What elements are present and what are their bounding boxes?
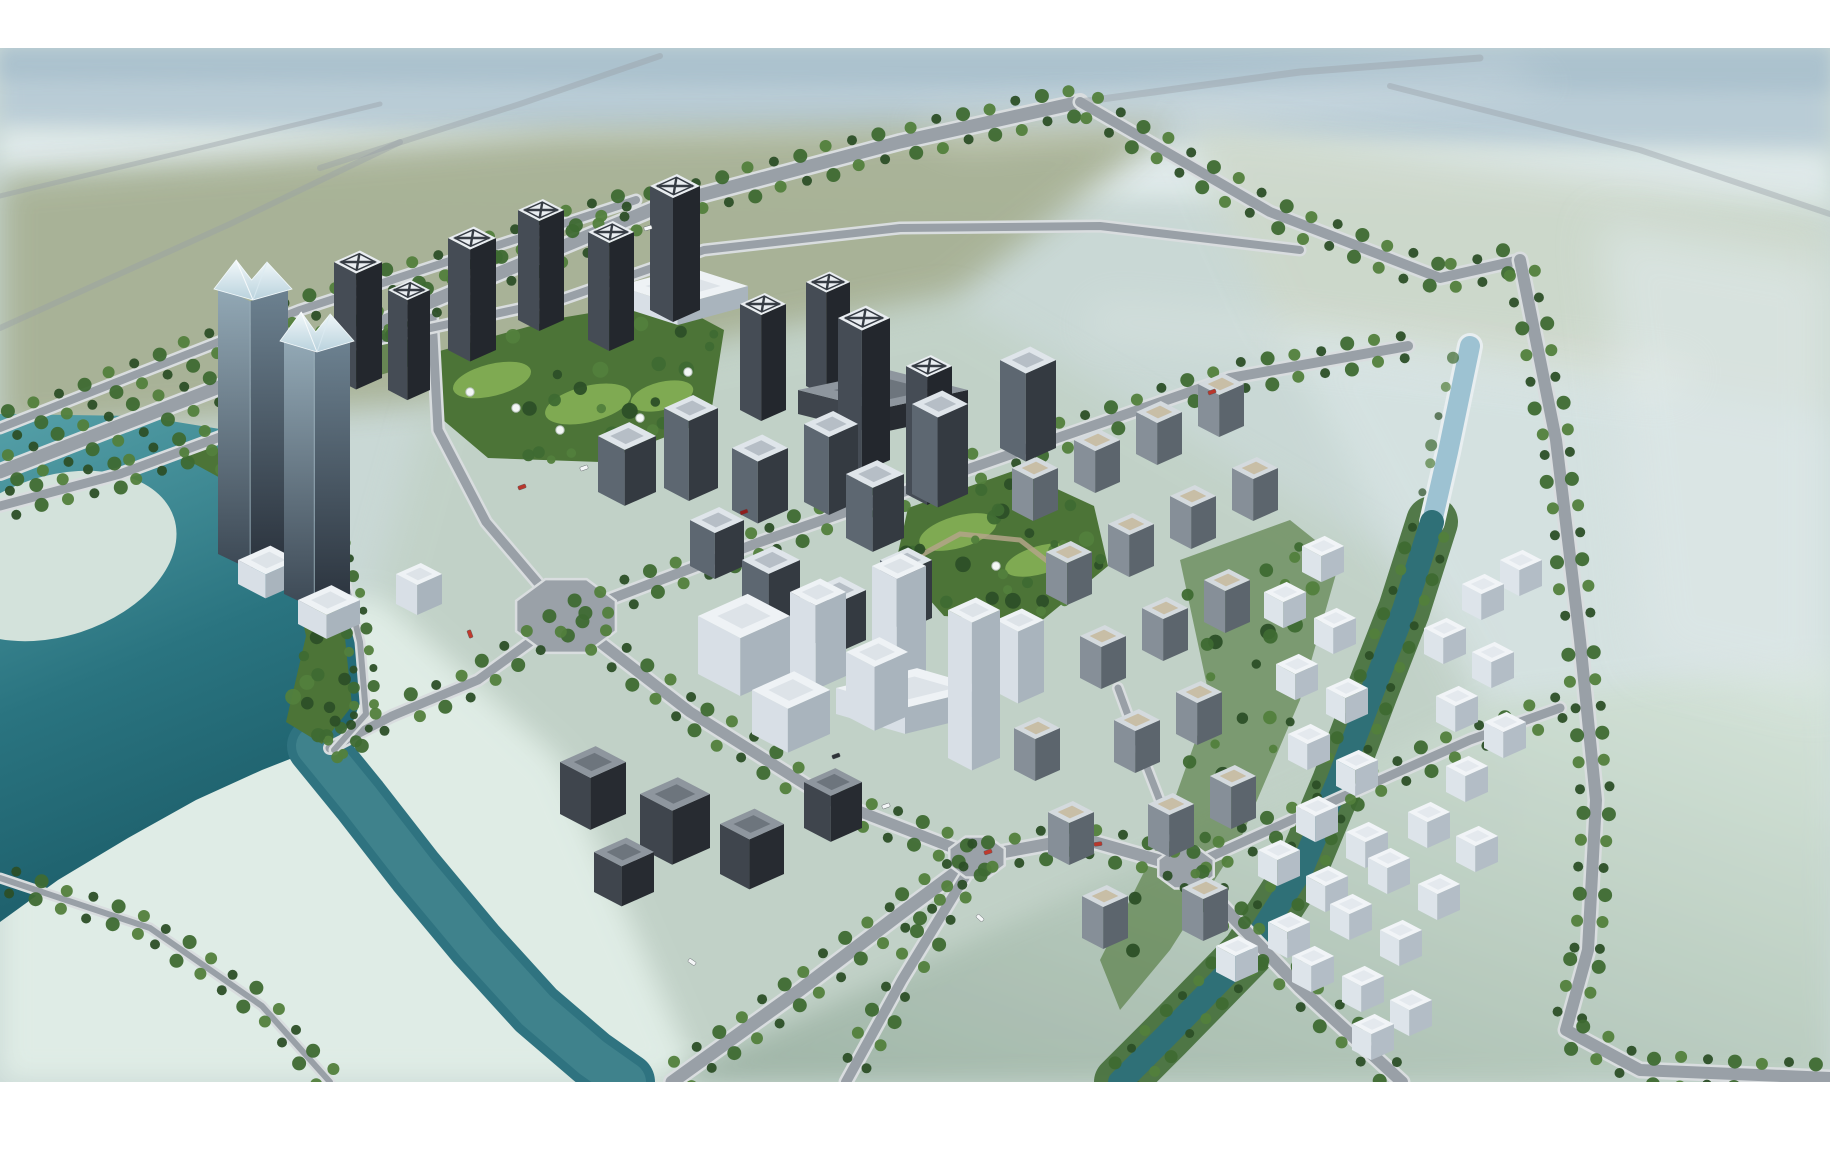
- tree: [764, 523, 774, 533]
- tree: [1288, 349, 1300, 361]
- tree: [1398, 541, 1411, 554]
- tree: [1373, 262, 1385, 274]
- cube-office: [1148, 793, 1194, 857]
- tree: [607, 662, 617, 672]
- cube-office: [1142, 597, 1188, 661]
- tree: [273, 1003, 285, 1015]
- tree: [1520, 349, 1532, 361]
- residential-tower: [388, 280, 430, 400]
- tree: [1182, 589, 1194, 601]
- tree: [1403, 641, 1416, 654]
- tree: [1599, 863, 1609, 873]
- tree: [136, 377, 148, 389]
- tree: [933, 850, 945, 862]
- tree: [1186, 148, 1196, 158]
- cube-office: [1198, 373, 1244, 437]
- tree: [895, 887, 909, 901]
- tree: [1065, 500, 1077, 512]
- tree: [629, 599, 639, 609]
- tree: [547, 455, 556, 464]
- masterplan-render: [0, 0, 1830, 1153]
- tree: [163, 370, 173, 380]
- tree: [404, 687, 418, 701]
- tree: [1104, 400, 1118, 414]
- tree: [877, 937, 889, 949]
- tree: [64, 457, 74, 467]
- cube-office: [1136, 401, 1182, 465]
- tree: [81, 914, 91, 924]
- tree: [931, 114, 941, 124]
- tree: [86, 442, 100, 456]
- tree: [1079, 531, 1094, 546]
- tree: [787, 509, 801, 523]
- tree: [123, 454, 135, 466]
- tree: [1647, 1052, 1661, 1066]
- tree: [1178, 991, 1187, 1000]
- tree: [1728, 1055, 1742, 1069]
- tree: [724, 197, 734, 207]
- tree: [1375, 785, 1387, 797]
- tree: [793, 149, 807, 163]
- tree: [1261, 351, 1275, 365]
- tree: [986, 592, 999, 605]
- tree: [1472, 254, 1482, 264]
- tree: [566, 224, 580, 238]
- tree: [1550, 530, 1560, 540]
- tree: [259, 1016, 271, 1028]
- tree: [1575, 527, 1585, 537]
- tree: [651, 397, 661, 407]
- tree: [203, 371, 217, 385]
- tree: [1425, 439, 1437, 451]
- tree: [1252, 659, 1261, 668]
- tree: [1573, 887, 1587, 901]
- tree: [161, 413, 175, 427]
- tree: [854, 952, 868, 966]
- tree: [1408, 523, 1417, 532]
- tree: [522, 449, 534, 461]
- cube-office: [1074, 429, 1120, 493]
- tree: [1160, 1004, 1173, 1017]
- tree: [206, 444, 218, 456]
- tree: [291, 1025, 301, 1035]
- tree: [1571, 915, 1583, 927]
- tree: [709, 330, 718, 339]
- office-block-face-right: [1026, 360, 1056, 461]
- tree: [975, 484, 987, 496]
- cube-office: [1114, 709, 1160, 773]
- tree: [726, 715, 738, 727]
- tree: [1392, 756, 1402, 766]
- tree: [77, 419, 89, 431]
- residential-tower: [448, 226, 496, 361]
- tree: [1356, 1057, 1366, 1067]
- tree: [793, 998, 807, 1012]
- tree: [1238, 916, 1251, 929]
- office-block: [732, 435, 788, 524]
- white-building-face-right: [1018, 620, 1044, 704]
- tree: [1587, 645, 1601, 659]
- tree: [576, 614, 590, 628]
- tree: [1563, 952, 1577, 966]
- white-building: [948, 598, 1000, 771]
- tree: [775, 181, 787, 193]
- cube-office: [1014, 717, 1060, 781]
- tree: [1129, 892, 1142, 905]
- tree: [568, 594, 582, 608]
- tree: [1206, 672, 1215, 681]
- tree: [1256, 954, 1269, 967]
- dark-slab: [804, 768, 862, 842]
- tree: [705, 342, 714, 351]
- tree: [1200, 1013, 1211, 1024]
- tree: [1222, 856, 1234, 868]
- tree: [1381, 240, 1393, 252]
- tree: [1561, 648, 1575, 662]
- tree: [594, 586, 606, 598]
- tree: [1573, 756, 1585, 768]
- tree: [745, 527, 757, 539]
- tree: [54, 389, 64, 399]
- tree: [1320, 368, 1330, 378]
- residential-tower-face-right: [673, 186, 700, 322]
- tree: [350, 711, 358, 719]
- tree: [35, 874, 49, 888]
- tree: [1063, 85, 1075, 97]
- tree: [942, 827, 954, 839]
- residential-tower: [518, 199, 564, 331]
- tree: [881, 982, 891, 992]
- tree: [1534, 293, 1544, 303]
- tree: [821, 523, 833, 535]
- residential-tower-face-right: [356, 262, 382, 390]
- tree: [916, 815, 930, 829]
- tree: [797, 966, 809, 978]
- tree: [161, 924, 171, 934]
- tree: [1080, 410, 1090, 420]
- tree: [960, 892, 972, 904]
- tree: [1550, 372, 1560, 382]
- tree: [1528, 402, 1542, 416]
- tree: [1540, 450, 1550, 460]
- tree: [1263, 629, 1278, 644]
- tree: [1558, 713, 1568, 723]
- tree: [188, 405, 200, 417]
- tree: [1127, 1044, 1136, 1053]
- tree: [652, 357, 666, 371]
- tree: [1504, 270, 1516, 282]
- tree: [619, 575, 629, 585]
- office-block: [690, 507, 744, 579]
- tree: [368, 680, 380, 692]
- tree: [852, 1027, 864, 1039]
- tree: [1396, 331, 1406, 341]
- tree: [1092, 92, 1104, 104]
- office-block-face-left: [664, 408, 689, 501]
- cube-office: [1012, 457, 1058, 521]
- tree: [650, 693, 662, 705]
- tree: [1248, 847, 1258, 857]
- tree: [1067, 110, 1081, 124]
- tree: [150, 939, 160, 949]
- tree: [1435, 412, 1443, 420]
- tree: [711, 740, 723, 752]
- pavilion-tent: [556, 426, 564, 434]
- tree: [138, 910, 150, 922]
- tree: [130, 473, 142, 485]
- tree: [1398, 274, 1408, 284]
- crystal-tower: [280, 312, 354, 609]
- tree: [946, 915, 956, 925]
- tree: [1235, 901, 1249, 915]
- tree: [1126, 944, 1140, 958]
- tree: [1095, 554, 1105, 564]
- tree: [183, 935, 197, 949]
- tree: [742, 161, 754, 173]
- tree: [1615, 1068, 1625, 1078]
- tree: [757, 994, 767, 1004]
- tree: [836, 972, 846, 982]
- pavilion-tent: [684, 368, 692, 376]
- tree: [1036, 826, 1046, 836]
- residential-tower: [740, 293, 786, 421]
- tree: [1426, 573, 1439, 586]
- tree: [942, 859, 952, 869]
- tree: [748, 189, 762, 203]
- tree: [1010, 96, 1020, 106]
- tree: [1589, 673, 1601, 685]
- tree: [104, 412, 114, 422]
- tree: [880, 154, 890, 164]
- tree: [62, 493, 74, 505]
- tree: [984, 104, 996, 116]
- tree: [1379, 702, 1392, 715]
- tree: [643, 564, 657, 578]
- tree: [1557, 396, 1571, 410]
- tree: [888, 1015, 902, 1029]
- tree: [640, 658, 654, 672]
- office-block: [1000, 347, 1056, 462]
- tree: [998, 569, 1008, 579]
- tree: [348, 682, 360, 694]
- tree: [885, 902, 895, 912]
- tree: [1313, 1019, 1327, 1033]
- cube-office: [1204, 569, 1250, 633]
- tree: [542, 609, 556, 623]
- tree: [780, 782, 792, 794]
- frame-bottom: [0, 1082, 1830, 1153]
- tree: [1550, 555, 1564, 569]
- tree: [1183, 755, 1196, 768]
- tree: [522, 401, 537, 416]
- residential-tower-face-left: [518, 210, 539, 331]
- tree: [1162, 132, 1174, 144]
- tree: [1296, 1002, 1306, 1012]
- tree: [1320, 855, 1331, 866]
- tree: [1564, 1042, 1578, 1056]
- tree: [11, 867, 21, 877]
- tree: [665, 674, 677, 686]
- pavilion-tent: [992, 562, 1000, 570]
- tree: [360, 623, 372, 635]
- tree: [199, 425, 211, 437]
- tree: [1354, 669, 1367, 682]
- tree: [324, 702, 335, 713]
- tree: [10, 472, 24, 486]
- tree: [1289, 552, 1300, 563]
- tree: [1273, 978, 1285, 990]
- tree: [414, 710, 426, 722]
- tree: [1445, 258, 1457, 270]
- tree: [1165, 1050, 1178, 1063]
- tree: [126, 397, 140, 411]
- white-building-face-right: [816, 592, 846, 689]
- crystal-face-right: [250, 286, 288, 569]
- tree: [587, 199, 597, 209]
- tree: [61, 408, 73, 420]
- tree: [1035, 89, 1049, 103]
- crystal-face-left: [284, 338, 314, 609]
- tree: [988, 128, 1002, 142]
- tree: [236, 1000, 250, 1014]
- tree: [1809, 1057, 1823, 1071]
- tree: [671, 711, 681, 721]
- tree: [106, 917, 120, 931]
- tree: [1340, 337, 1354, 351]
- tree: [865, 1003, 879, 1017]
- tree: [1368, 334, 1380, 346]
- tree: [1377, 607, 1390, 620]
- white-building-face-right: [972, 610, 1000, 770]
- tree: [634, 317, 649, 332]
- tree: [1703, 1054, 1713, 1064]
- residential-tower-face-left: [388, 290, 407, 400]
- tree: [1253, 923, 1265, 935]
- tree: [896, 948, 908, 960]
- tree: [1333, 219, 1343, 229]
- tree: [1400, 353, 1410, 363]
- tree: [1324, 241, 1334, 251]
- tree: [883, 833, 893, 843]
- tree: [1585, 608, 1595, 618]
- tree: [29, 892, 43, 906]
- tree: [736, 753, 746, 763]
- tree: [88, 892, 98, 902]
- white-building: [996, 608, 1044, 703]
- tree: [1022, 577, 1033, 588]
- residential-tower: [588, 221, 634, 351]
- tree: [1509, 298, 1519, 308]
- tree: [1575, 834, 1587, 846]
- tree: [34, 415, 48, 429]
- tree: [1570, 943, 1580, 953]
- tree: [57, 473, 69, 485]
- tree: [1784, 1057, 1794, 1067]
- tree: [736, 1011, 748, 1023]
- cube-office: [1082, 885, 1128, 949]
- tree: [1419, 595, 1430, 606]
- tree: [433, 250, 443, 260]
- tree: [132, 928, 144, 940]
- tree: [900, 992, 910, 1002]
- tree: [1118, 830, 1128, 840]
- tree: [1265, 377, 1279, 391]
- tree: [625, 678, 639, 692]
- tree: [1540, 475, 1554, 489]
- tree: [712, 1025, 726, 1039]
- tree: [548, 394, 561, 407]
- tree: [1009, 833, 1021, 845]
- tree: [4, 889, 14, 899]
- pavilion-tent: [636, 414, 644, 422]
- tree: [1062, 442, 1074, 454]
- tree: [918, 961, 930, 973]
- residential-tower: [650, 174, 700, 322]
- tree: [139, 427, 149, 437]
- tree: [1156, 383, 1166, 393]
- tree: [157, 466, 167, 476]
- tree: [1195, 180, 1209, 194]
- tree: [1550, 693, 1560, 703]
- tree: [112, 435, 124, 447]
- tree: [620, 212, 630, 222]
- tree: [172, 432, 186, 446]
- tree: [186, 359, 200, 373]
- tree: [1564, 676, 1576, 688]
- tree: [87, 400, 97, 410]
- tree: [1116, 107, 1126, 117]
- frame-top: [0, 0, 1830, 48]
- tree: [956, 107, 970, 121]
- tree: [466, 693, 476, 703]
- tree: [838, 931, 852, 945]
- tree: [793, 762, 805, 774]
- tree: [727, 1046, 741, 1060]
- tree: [89, 488, 99, 498]
- tree: [1425, 764, 1439, 778]
- tree: [1582, 580, 1594, 592]
- tree: [971, 536, 979, 544]
- tree: [1080, 112, 1092, 124]
- cube-office: [1176, 681, 1222, 745]
- tree: [109, 385, 123, 399]
- tree: [1605, 781, 1615, 791]
- tree: [432, 308, 442, 318]
- tree: [1125, 140, 1139, 154]
- tree: [292, 1056, 306, 1070]
- tree: [306, 1044, 320, 1058]
- tree: [1210, 739, 1219, 748]
- tree: [692, 1042, 702, 1052]
- tree: [1423, 279, 1437, 293]
- tree: [1577, 806, 1591, 820]
- tree: [955, 557, 971, 573]
- tree: [1200, 832, 1211, 843]
- tree: [756, 766, 770, 780]
- tree: [778, 977, 792, 991]
- tree: [536, 645, 546, 655]
- tree: [170, 954, 184, 968]
- tree: [511, 658, 525, 672]
- tree: [1565, 472, 1579, 486]
- tree: [1269, 745, 1278, 754]
- tree: [1526, 377, 1536, 387]
- tree: [847, 135, 857, 145]
- tree: [670, 557, 682, 569]
- tree: [1447, 352, 1459, 364]
- tree: [1515, 321, 1529, 335]
- tree: [1598, 888, 1612, 902]
